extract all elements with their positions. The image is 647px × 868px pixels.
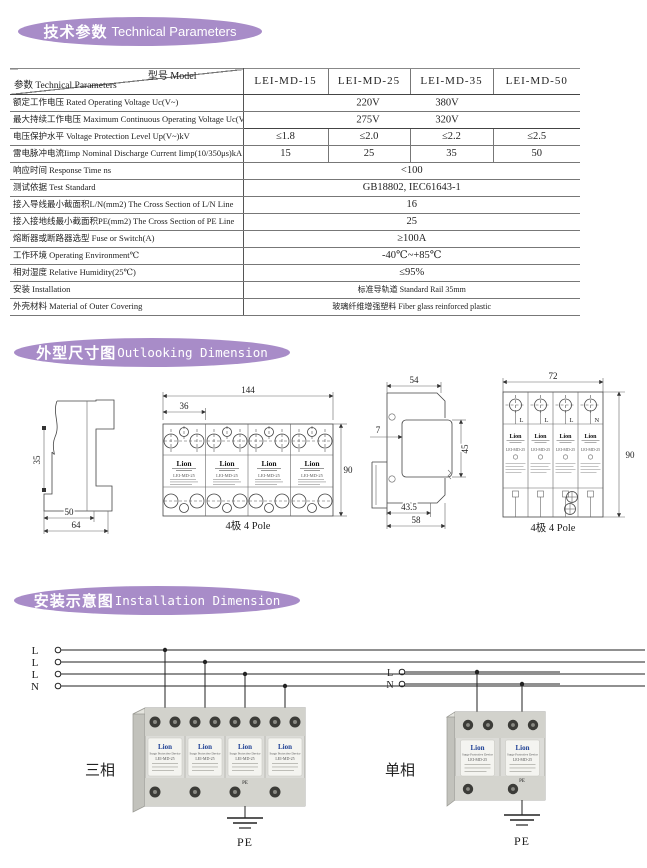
dim-label-height-90: 90	[344, 465, 354, 475]
module-subtitle: Surge Protective Device	[230, 752, 262, 756]
cell-value: ≤2.5	[493, 129, 580, 146]
module-model: LEI-MD-25	[506, 447, 525, 452]
cell-value: 220V	[356, 97, 379, 109]
cell-value: 50	[493, 146, 580, 163]
module-front: Lion LEI-MD-25	[292, 426, 332, 513]
datasheet-page: 技术参数 Technical Parameters 型号 Model 参数 Te…	[0, 0, 647, 868]
module-logo: Lion	[198, 743, 212, 751]
cell-value: 标准导轨道 Standard Rail 35mm	[243, 282, 580, 299]
line-label: N	[31, 681, 39, 693]
line-label: N	[386, 680, 393, 691]
spd-device-photo-2pole: Lion Surge Protective Device LEI-MD-25 L…	[447, 712, 545, 806]
line-label: L	[32, 657, 39, 669]
row-label: 测试依据 Test Standard	[10, 180, 243, 197]
module-subtitle: Surge Protective Device	[462, 753, 494, 757]
cell-value: ≥100A	[243, 231, 580, 248]
banner-title-cn: 外型尺寸图	[36, 342, 116, 363]
cell-value: 380V	[435, 97, 458, 109]
cell-value: 15	[243, 146, 328, 163]
module-model: LEI-MD-25	[531, 447, 550, 452]
terminal-label: N	[595, 417, 600, 424]
module-model: LEI-MD-25	[235, 756, 254, 761]
module-model: LEI-MD-25	[155, 756, 174, 761]
row-label: 额定工作电压 Rated Operating Voltage Uc(V~)	[10, 95, 243, 112]
module-subtitle: Surge Protective Device	[507, 753, 539, 757]
row-label: 雷电脉冲电流Iimp Nominal Discharge Current Iim…	[10, 146, 243, 163]
module-model: LEI-MD-25	[581, 447, 600, 452]
phase-label: 三相	[85, 762, 115, 779]
table-row: 熔断器或断路器选型 Fuse or Switch(A) ≥100A	[10, 231, 580, 248]
outline-dimension-banner: 外型尺寸图 Outlooking Dimension	[14, 338, 290, 367]
table-row: 电压保护水平 Voltage Protection Level Up(V~)kV…	[10, 129, 580, 146]
module-label: Lion Surge Protective Device LEI-MD-25	[228, 738, 262, 776]
cell-value: ≤1.8	[243, 129, 328, 146]
table-row: 安装 Installation 标准导轨道 Standard Rail 35mm	[10, 282, 580, 299]
cell-value: 25	[243, 214, 580, 231]
module-front-narrow: L Lion LEI-MD-25	[531, 395, 551, 517]
pe-label: PE	[514, 834, 530, 848]
module-subtitle: Surge Protective Device	[150, 752, 182, 756]
pole-caption: 4极 4 Pole	[226, 519, 271, 532]
front-view-wide-drawing: 144 36 Lion LEI-MD-25	[163, 385, 353, 532]
dim-label-rail-35: 35	[32, 455, 42, 465]
side-profile-small-drawing: 35 50 64	[32, 400, 114, 534]
module-label: Lion Surge Protective Device LEI-MD-25	[506, 740, 540, 776]
table-row: 接入导线最小截面积L/N(mm2) The Cross Section of L…	[10, 197, 580, 214]
corner-params-label: 参数 Technical Parameters	[14, 81, 117, 93]
pole-caption: 4极 4 Pole	[531, 521, 576, 534]
module-logo: Lion	[219, 459, 235, 468]
banner-title-en: Installation Dimension	[115, 593, 281, 608]
module-logo: Lion	[158, 743, 172, 751]
dim-label-total-144: 144	[241, 385, 255, 395]
table-row: 相对湿度 Relative Humidity(25℃) ≤95%	[10, 265, 580, 282]
cell-value: 275V	[356, 114, 379, 126]
dim-label-depth-64: 64	[72, 520, 82, 530]
row-label: 相对湿度 Relative Humidity(25℃)	[10, 265, 243, 282]
module-front-narrow: N Lion LEI-MD-25	[581, 395, 601, 517]
module-label: Lion Surge Protective Device LEI-MD-25	[188, 738, 222, 776]
cell-value: 320V	[435, 114, 458, 126]
row-values: 220V 380V	[243, 95, 580, 112]
cell-value: GB18802, IEC61643-1	[243, 180, 580, 197]
table-row: 额定工作电压 Rated Operating Voltage Uc(V~) 22…	[10, 95, 580, 112]
device-pe-label: PE	[242, 781, 248, 786]
installation-diagrams-svg: L L L N 三相	[0, 640, 647, 868]
cell-value: 玻璃纤维增强塑料 Fiber glass reinforced plastic	[243, 299, 580, 316]
single-phase-diagram: L N 单相	[385, 668, 560, 848]
module-model: LEI-MD-25	[258, 473, 280, 478]
module-logo: Lion	[509, 434, 522, 440]
module-logo: Lion	[534, 434, 547, 440]
ground-symbol	[504, 800, 540, 825]
tech-params-banner: 技术参数 Technical Parameters	[18, 17, 262, 46]
cell-value: <100	[243, 163, 580, 180]
module-subtitle: Surge Protective Device	[270, 752, 302, 756]
dim-label-total-72: 72	[549, 371, 558, 381]
table-header-row: 型号 Model 参数 Technical Parameters LEI-MD-…	[10, 69, 580, 95]
module-logo: Lion	[584, 434, 597, 440]
cell-value: 35	[410, 146, 493, 163]
dim-label-depth-50: 50	[65, 507, 75, 517]
module-label: Lion Surge Protective Device LEI-MD-25	[461, 740, 495, 776]
row-label: 最大持续工作电压 Maximum Continuous Operating Vo…	[10, 112, 243, 129]
module-front: Lion LEI-MD-25	[249, 426, 289, 513]
row-label: 接入接地线最小截面积PE(mm2) The Cross Section of P…	[10, 214, 243, 231]
cell-value: -40℃~+85℃	[243, 248, 580, 265]
pe-label: PE	[237, 835, 253, 849]
dim-label-height-90: 90	[626, 450, 636, 460]
model-header: LEI-MD-35	[410, 69, 493, 95]
dim-label-module-36: 36	[180, 401, 190, 411]
spec-table: 型号 Model 参数 Technical Parameters LEI-MD-…	[10, 68, 580, 316]
table-row: 外壳材料 Material of Outer Covering 玻璃纤维增强塑料…	[10, 299, 580, 316]
module-front: Lion LEI-MD-25	[207, 426, 247, 513]
model-header: LEI-MD-25	[328, 69, 410, 95]
module-model: LEI-MD-25	[301, 473, 323, 478]
module-front-narrow: L Lion LEI-MD-25	[506, 395, 526, 517]
row-label: 响应时间 Response Time ns	[10, 163, 243, 180]
table-row: 工作环境 Operating Environment℃ -40℃~+85℃	[10, 248, 580, 265]
line-label: L	[387, 668, 393, 679]
module-logo: Lion	[559, 434, 572, 440]
corner-cell: 型号 Model 参数 Technical Parameters	[10, 69, 243, 95]
module-model: LEI-MD-25	[513, 757, 532, 762]
side-profile-deep-drawing: 54 7 45 43.5 58	[370, 375, 470, 529]
row-label: 熔断器或断路器选型 Fuse or Switch(A)	[10, 231, 243, 248]
terminal-label: L	[570, 417, 574, 424]
module-front-narrow: L Lion LEI-MD-25	[556, 395, 576, 517]
row-label: 接入导线最小截面积L/N(mm2) The Cross Section of L…	[10, 197, 243, 214]
banner-title-en: Technical Parameters	[112, 24, 237, 39]
module-logo: Lion	[515, 744, 529, 752]
table-row: 最大持续工作电压 Maximum Continuous Operating Vo…	[10, 112, 580, 129]
module-model: LEI-MD-25	[556, 447, 575, 452]
module-logo: Lion	[238, 743, 252, 751]
terminal-label: L	[520, 417, 524, 424]
module-label: Lion Surge Protective Device LEI-MD-25	[148, 738, 182, 776]
module-logo: Lion	[470, 744, 484, 752]
dim-label-top-54: 54	[410, 375, 420, 385]
front-view-narrow-drawing: 72 L Lion LEI-MD-25	[503, 371, 635, 534]
table-row: 测试依据 Test Standard GB18802, IEC61643-1	[10, 180, 580, 197]
model-header: LEI-MD-15	[243, 69, 328, 95]
cell-value: ≤95%	[243, 265, 580, 282]
module-logo: Lion	[261, 459, 277, 468]
dim-label-offset-7: 7	[376, 425, 381, 435]
cell-value: ≤2.2	[410, 129, 493, 146]
phase-label: 单相	[385, 762, 415, 779]
line-label: L	[32, 669, 39, 681]
module-model: LEI-MD-25	[173, 473, 195, 478]
module-front: Lion LEI-MD-25	[164, 426, 204, 513]
line-label: L	[32, 645, 39, 657]
device-pe-label: PE	[519, 779, 525, 784]
module-model: LEI-MD-25	[195, 756, 214, 761]
module-logo: Lion	[278, 743, 292, 751]
banner-title-cn: 技术参数	[43, 21, 107, 42]
row-label: 安装 Installation	[10, 282, 243, 299]
dim-label-body-45: 45	[460, 444, 470, 454]
row-values: 275V 320V	[243, 112, 580, 129]
module-model: LEI-MD-25	[216, 473, 238, 478]
terminal-label: L	[545, 417, 549, 424]
module-model: LEI-MD-25	[468, 757, 487, 762]
spd-device-photo-4pole: Lion Surge Protective Device LEI-MD-25 L…	[133, 708, 305, 812]
module-logo: Lion	[304, 459, 320, 468]
cell-value: 16	[243, 197, 580, 214]
dim-label-bottom-58: 58	[412, 515, 422, 525]
table-row: 响应时间 Response Time ns <100	[10, 163, 580, 180]
corner-model-label: 型号 Model	[148, 71, 197, 83]
three-phase-diagram: L L L N 三相	[31, 645, 645, 849]
module-logo: Lion	[176, 459, 192, 468]
row-label: 工作环境 Operating Environment℃	[10, 248, 243, 265]
outline-drawings-svg: 35 50 64 144 36	[0, 370, 647, 585]
module-label: Lion Surge Protective Device LEI-MD-25	[268, 738, 302, 776]
installation-banner: 安装示意图 Installation Dimension	[14, 586, 300, 615]
ground-symbol	[227, 806, 263, 828]
cell-value: 25	[328, 146, 410, 163]
banner-title-cn: 安装示意图	[34, 590, 114, 611]
banner-title-en: Outlooking Dimension	[117, 345, 268, 360]
module-subtitle: Surge Protective Device	[190, 752, 222, 756]
table-row: 雷电脉冲电流Iimp Nominal Discharge Current Iim…	[10, 146, 580, 163]
row-label: 外壳材料 Material of Outer Covering	[10, 299, 243, 316]
table-row: 接入接地线最小截面积PE(mm2) The Cross Section of P…	[10, 214, 580, 231]
row-label: 电压保护水平 Voltage Protection Level Up(V~)kV	[10, 129, 243, 146]
cell-value: ≤2.0	[328, 129, 410, 146]
dim-label-bottom-43-5: 43.5	[401, 502, 417, 512]
module-model: LEI-MD-25	[275, 756, 294, 761]
model-header: LEI-MD-50	[493, 69, 580, 95]
